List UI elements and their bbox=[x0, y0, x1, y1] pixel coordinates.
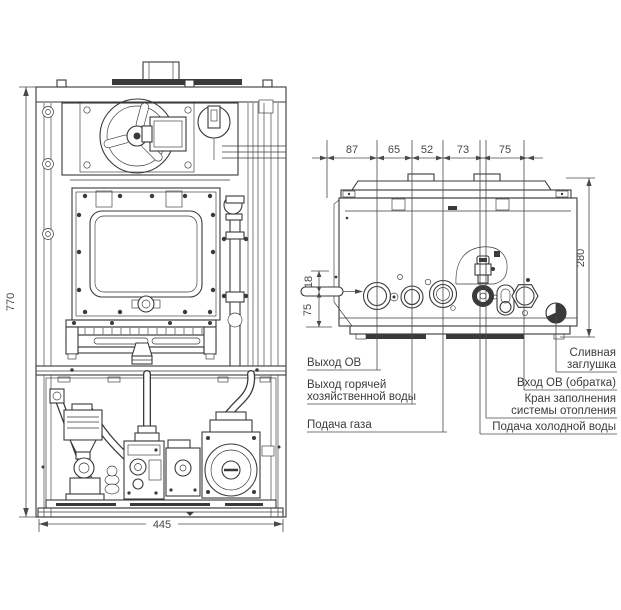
dim-spacing-52: 52 bbox=[421, 144, 433, 156]
flue-collar bbox=[57, 62, 272, 87]
dim-spacing-75: 75 bbox=[499, 144, 511, 156]
dim-spacing-87: 87 bbox=[346, 144, 358, 156]
small-hole bbox=[451, 306, 456, 311]
small-hole bbox=[425, 279, 431, 285]
dim-left-offsets: 18 75 bbox=[301, 271, 363, 327]
dim-spacing-65: 65 bbox=[388, 144, 400, 156]
fan-assembly bbox=[62, 99, 238, 180]
boiler-dimensions-diagram: 770 445 bbox=[0, 0, 621, 610]
label-fill-line2: системы отопления bbox=[511, 405, 616, 417]
gas-valve bbox=[105, 426, 164, 499]
gas-meter-unit bbox=[64, 404, 104, 502]
port-labels: Выход ОВ Выход горячей хозяйственной вод… bbox=[307, 347, 617, 434]
unit-outline bbox=[334, 174, 577, 339]
burner-assembly bbox=[66, 320, 216, 364]
sight-window bbox=[90, 211, 202, 297]
bottom-view: 87 65 52 73 75 280 1 bbox=[301, 140, 617, 434]
dim-height-label: 770 bbox=[5, 293, 17, 311]
label-cold-water: Подача холодной воды bbox=[492, 421, 616, 433]
dim-width-label: 445 bbox=[153, 519, 171, 531]
label-ch-flow: Выход ОВ bbox=[307, 357, 362, 369]
circulation-pump bbox=[202, 412, 260, 498]
dim-offset-75: 75 bbox=[302, 304, 314, 316]
bottom-rail bbox=[38, 500, 283, 517]
hydraulic-block bbox=[166, 440, 200, 496]
combustion-chamber bbox=[72, 188, 220, 320]
burner-slots-top bbox=[76, 328, 202, 334]
ignition-port bbox=[132, 296, 160, 312]
front-view: 770 445 bbox=[5, 62, 286, 532]
label-dhw-line2: хозяйственной воды bbox=[307, 391, 416, 403]
right-side-pipes bbox=[222, 103, 286, 366]
gas-inlet-funnel bbox=[132, 343, 152, 364]
small-hole bbox=[522, 310, 527, 315]
port-cold-water bbox=[475, 288, 492, 305]
label-drain-line1: Сливная bbox=[569, 347, 616, 359]
dim-depth-label: 280 bbox=[575, 249, 587, 267]
label-drain-line2: заглушка bbox=[567, 359, 617, 371]
small-hole bbox=[526, 278, 530, 282]
port-ch-return bbox=[512, 285, 538, 308]
hydraulic-group bbox=[42, 374, 281, 502]
keyhole-bracket bbox=[497, 285, 514, 315]
dim-top-spacings: 87 65 52 73 75 bbox=[312, 144, 543, 160]
screw-dot bbox=[393, 296, 396, 299]
dim-width-445: 445 bbox=[39, 519, 283, 532]
dim-offset-18: 18 bbox=[303, 276, 315, 288]
small-hole bbox=[398, 275, 403, 280]
filling-valve bbox=[456, 247, 507, 284]
dim-height-770: 770 bbox=[5, 87, 36, 517]
label-ch-return: Вход ОВ (обратка) bbox=[517, 377, 616, 389]
dim-spacing-73: 73 bbox=[457, 144, 469, 156]
label-fill-line1: Кран заполнения bbox=[524, 393, 616, 405]
label-dhw-line1: Выход горячей bbox=[307, 379, 386, 391]
label-gas: Подача газа bbox=[307, 419, 372, 431]
